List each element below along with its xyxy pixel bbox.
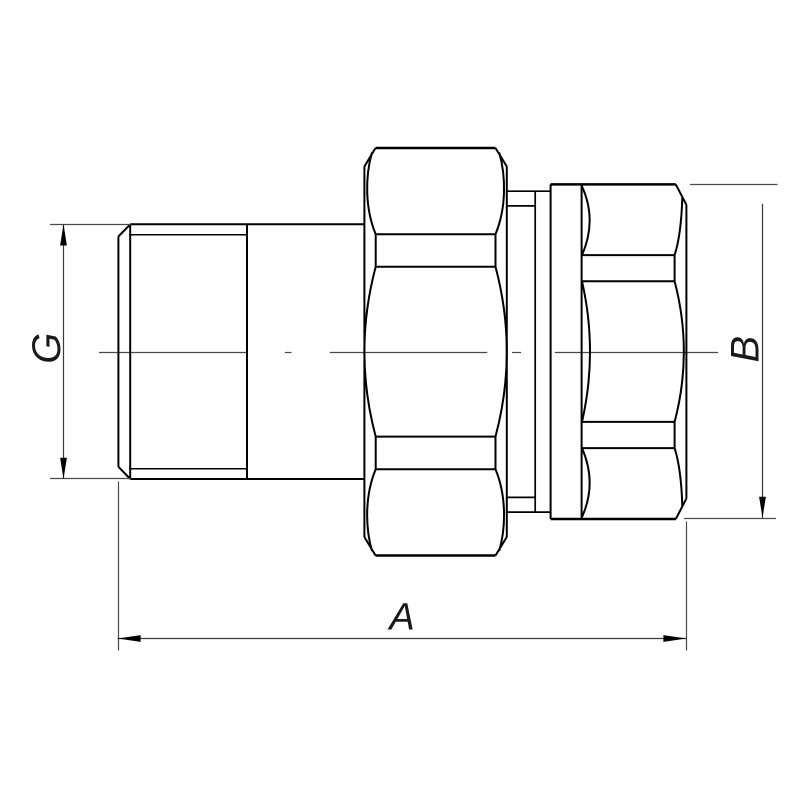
svg-text:A: A bbox=[387, 597, 414, 639]
svg-text:G: G bbox=[25, 333, 69, 364]
svg-text:B: B bbox=[723, 336, 767, 363]
